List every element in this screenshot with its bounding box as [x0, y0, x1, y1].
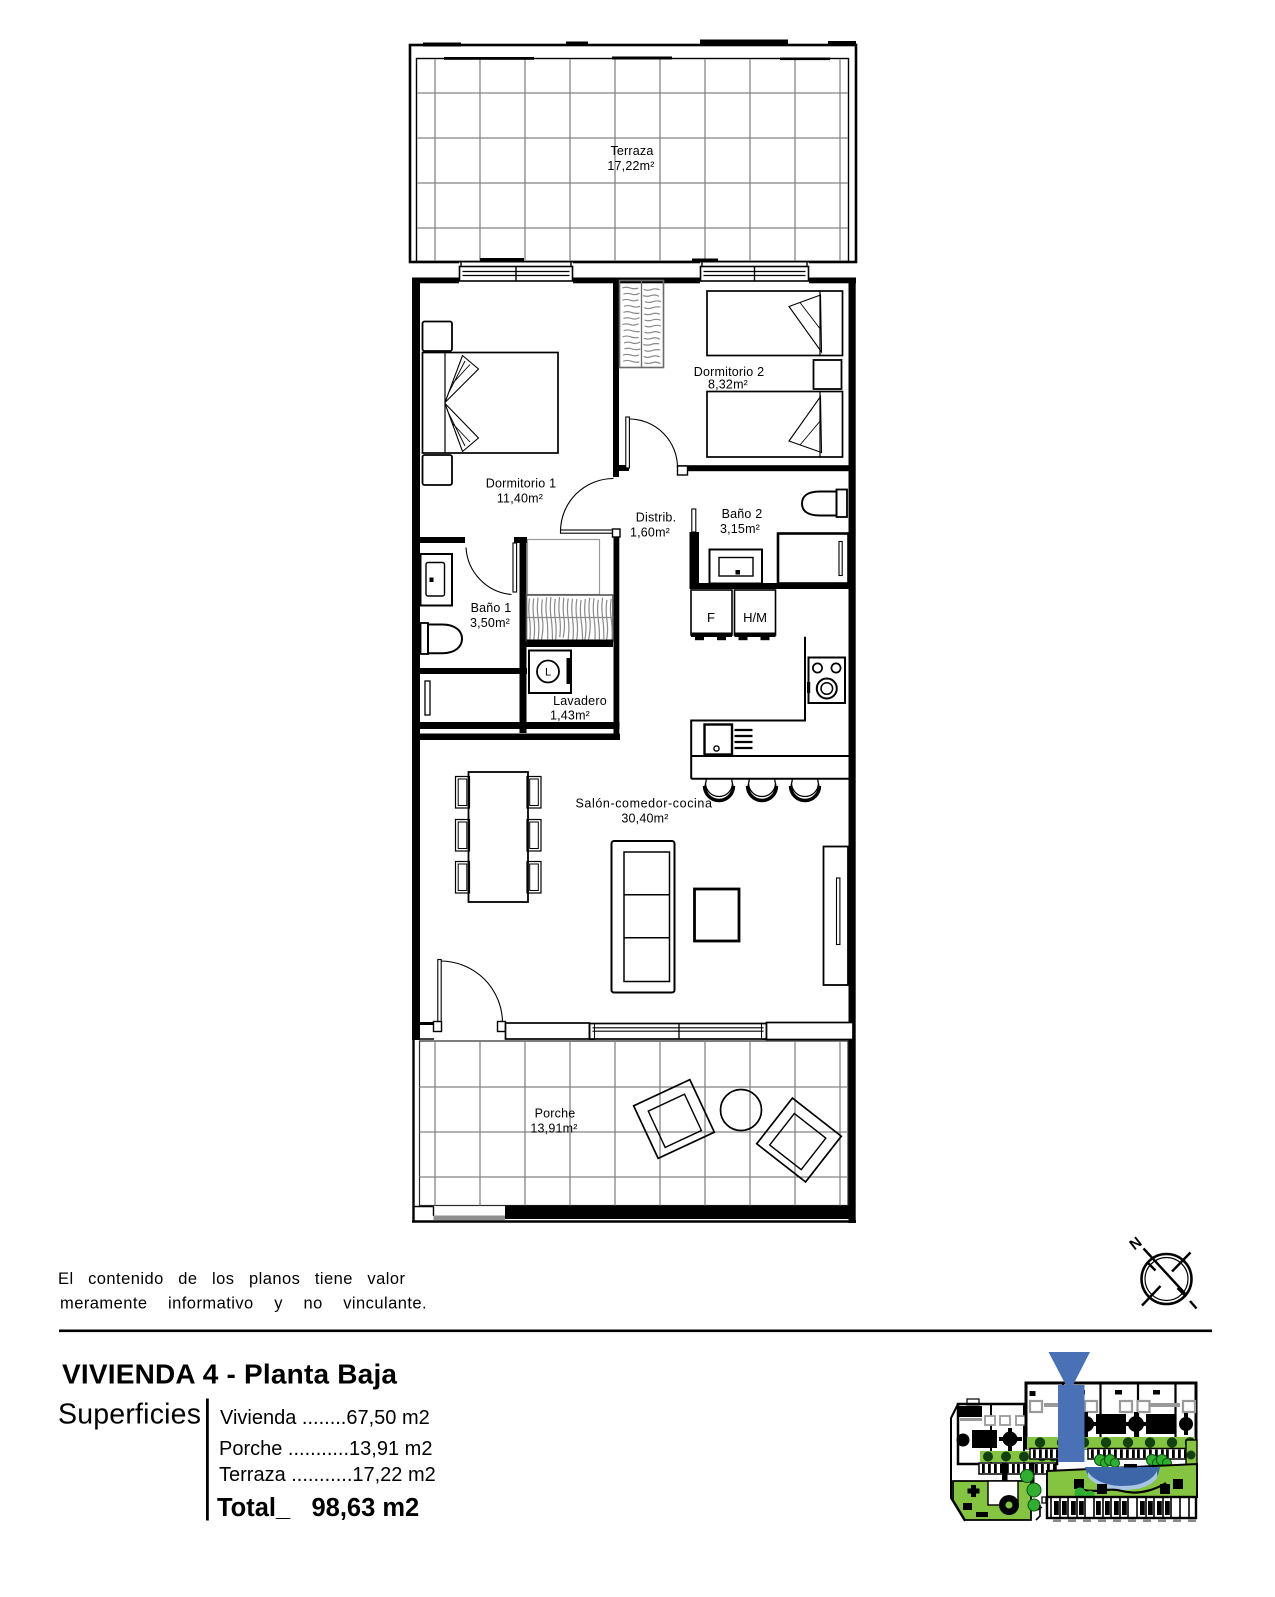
- svg-text:L: L: [545, 667, 551, 679]
- svg-text:Salón-comedor-cocina: Salón-comedor-cocina: [575, 797, 712, 811]
- svg-text:Dormitorio 1: Dormitorio 1: [486, 477, 556, 491]
- svg-text:11,40m²: 11,40m²: [497, 492, 543, 506]
- svg-text:Porche: Porche: [535, 1107, 576, 1121]
- svg-text:Baño 1: Baño 1: [471, 601, 512, 615]
- svg-text:El contenido de los planos tie: El contenido de los planos tiene valor: [58, 1270, 406, 1288]
- svg-text:H/M: H/M: [743, 610, 767, 625]
- svg-text:8,32m²: 8,32m²: [708, 378, 748, 392]
- svg-text:1,43m²: 1,43m²: [550, 709, 590, 723]
- svg-text:1,60m²: 1,60m²: [630, 526, 670, 540]
- svg-text:Vivienda ........67,50 m2: Vivienda ........67,50 m2: [220, 1407, 430, 1429]
- svg-text:Baño 2: Baño 2: [722, 507, 763, 521]
- svg-text:meramente informativo y no vin: meramente informativo y no vinculante.: [60, 1295, 427, 1313]
- svg-text:3,15m²: 3,15m²: [720, 522, 760, 536]
- svg-text:Porche ...........13,91 m2: Porche ...........13,91 m2: [219, 1438, 432, 1460]
- svg-text:Distrib.: Distrib.: [636, 511, 677, 525]
- svg-text:Total_ 98,63 m2: Total_ 98,63 m2: [217, 1494, 419, 1522]
- svg-text:17,22m²: 17,22m²: [607, 159, 654, 173]
- svg-text:30,40m²: 30,40m²: [621, 812, 668, 826]
- svg-text:Lavadero: Lavadero: [553, 694, 607, 708]
- svg-text:VIVIENDA 4 - Planta Baja: VIVIENDA 4 - Planta Baja: [62, 1359, 397, 1390]
- svg-text:F: F: [707, 610, 715, 625]
- svg-text:3,50m²: 3,50m²: [470, 616, 510, 630]
- svg-text:13,91m²: 13,91m²: [530, 1122, 577, 1136]
- svg-text:Superficies: Superficies: [58, 1399, 201, 1431]
- svg-text:Terraza: Terraza: [610, 144, 653, 158]
- svg-text:Terraza ...........17,22 m2: Terraza ...........17,22 m2: [219, 1464, 436, 1486]
